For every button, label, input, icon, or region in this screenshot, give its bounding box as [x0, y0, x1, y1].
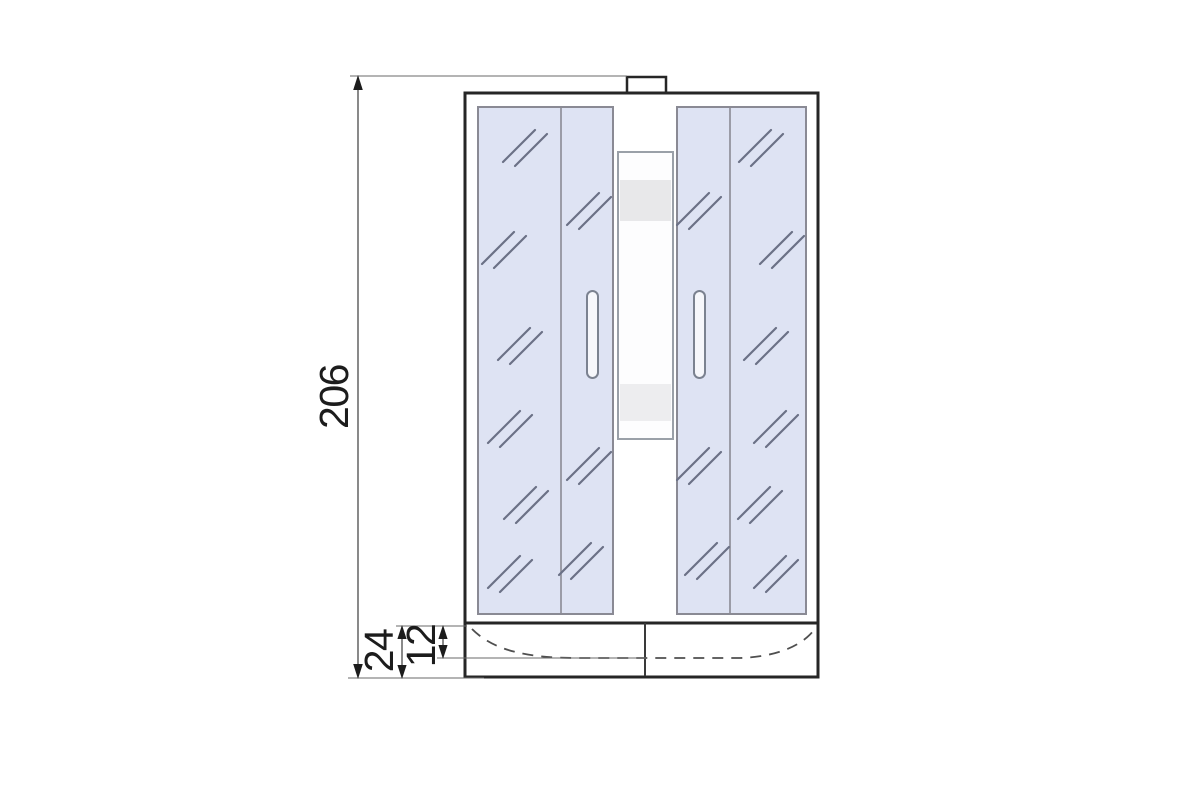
shower-cabin-drawing: 206 24 12: [0, 0, 1200, 800]
top-cap: [627, 77, 666, 94]
right-door-assembly: [677, 107, 806, 614]
center-panel-upper-band: [620, 180, 671, 221]
basin-depth-label: 12: [398, 625, 444, 668]
center-panel-lower-band: [620, 384, 671, 421]
arrow-up-icon: [353, 75, 363, 90]
total-height-label: 206: [311, 365, 357, 429]
right-door-handle: [694, 291, 705, 378]
center-column: [618, 152, 673, 439]
left-door-handle: [587, 291, 598, 378]
tray-height-label: 24: [356, 629, 402, 672]
